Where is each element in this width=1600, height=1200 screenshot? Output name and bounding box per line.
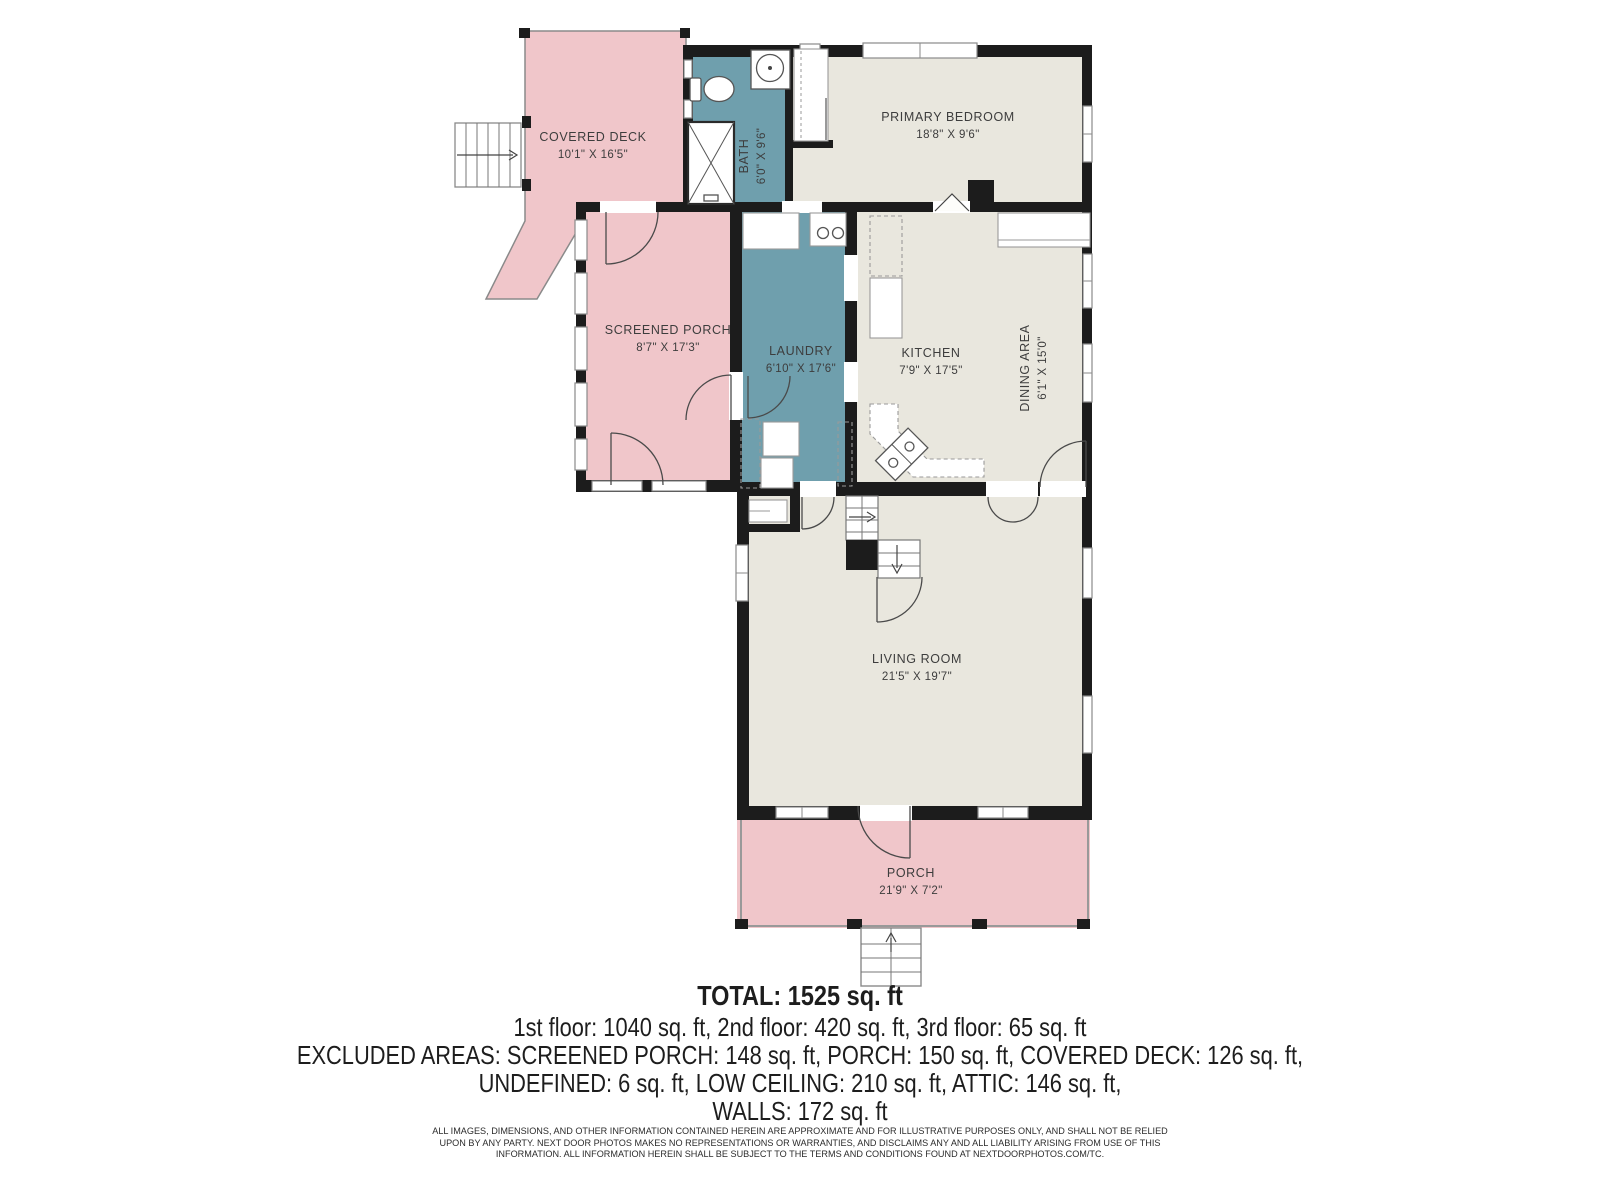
room-label-kitchen: KITCHEN 7'9" X 17'5" [899, 346, 962, 378]
living-closet-shelf [749, 500, 787, 522]
shower-drain [704, 195, 718, 201]
room-dims: 6'0" X 9'6" [756, 128, 769, 185]
room-label-covered-deck: COVERED DECK 10'1" X 16'5" [539, 130, 646, 162]
excluded-areas-text-3: WALLS: 172 sq. ft [128, 1096, 1472, 1127]
toilet-tank [690, 78, 701, 101]
chimney-block [968, 180, 994, 204]
room-label-living-room: LIVING ROOM 21'5" X 19'7" [872, 652, 962, 684]
bedroom-closet [794, 49, 828, 141]
room-name: COVERED DECK [539, 130, 646, 144]
room-dims: 7'9" X 17'5" [899, 365, 962, 378]
laundry-counter [743, 213, 799, 249]
disclaimer-text: ALL IMAGES, DIMENSIONS, AND OTHER INFORM… [421, 1126, 1179, 1161]
entry-steps [861, 928, 921, 986]
floor-areas-text: 1st floor: 1040 sq. ft, 2nd floor: 420 s… [128, 1012, 1472, 1043]
room-label-laundry: LAUNDRY 6'10" X 17'6" [766, 344, 836, 376]
room-dims: 6'1" X 15'0" [1037, 324, 1050, 411]
room-name: PRIMARY BEDROOM [881, 110, 1015, 124]
room-dims: 10'1" X 16'5" [539, 149, 646, 162]
room-label-screened-porch: SCREENED PORCH 8'7" X 17'3" [605, 323, 731, 355]
room-dims: 21'5" X 19'7" [872, 671, 962, 684]
toilet-icon [704, 77, 734, 102]
room-dims: 18'8" X 9'6" [881, 129, 1015, 142]
room-label-bath: BATH 6'0" X 9'6" [737, 128, 769, 185]
dining-builtin [998, 213, 1090, 247]
room-name: SCREENED PORCH [605, 323, 731, 337]
floor-plan-page: COVERED DECK 10'1" X 16'5" BATH 6'0" X 9… [0, 0, 1600, 1200]
excluded-areas-text-1: EXCLUDED AREAS: SCREENED PORCH: 148 sq. … [128, 1040, 1472, 1071]
room-name: BATH [737, 128, 751, 185]
washer-icon [763, 422, 799, 456]
room-name: LIVING ROOM [872, 652, 962, 666]
room-name: LAUNDRY [766, 344, 836, 358]
room-label-porch: PORCH 21'9" X 7'2" [879, 866, 942, 898]
room-label-primary-bedroom: PRIMARY BEDROOM 18'8" X 9'6" [881, 110, 1015, 142]
fridge-icon [870, 278, 902, 338]
room-dims: 21'9" X 7'2" [879, 885, 942, 898]
room-dims: 8'7" X 17'3" [605, 342, 731, 355]
room-name: KITCHEN [899, 346, 962, 360]
room-dims: 6'10" X 17'6" [766, 363, 836, 376]
dryer-icon [761, 458, 793, 488]
room-name: PORCH [879, 866, 942, 880]
total-area-text: TOTAL: 1525 sq. ft [128, 980, 1472, 1012]
room-name: DINING AREA [1018, 324, 1032, 411]
kitchen-dining-area [847, 212, 1090, 492]
room-label-dining-area: DINING AREA 6'1" X 15'0" [1018, 324, 1050, 411]
deck-stairs [455, 123, 521, 187]
excluded-areas-text-2: UNDEFINED: 6 sq. ft, LOW CEILING: 210 sq… [128, 1068, 1472, 1099]
